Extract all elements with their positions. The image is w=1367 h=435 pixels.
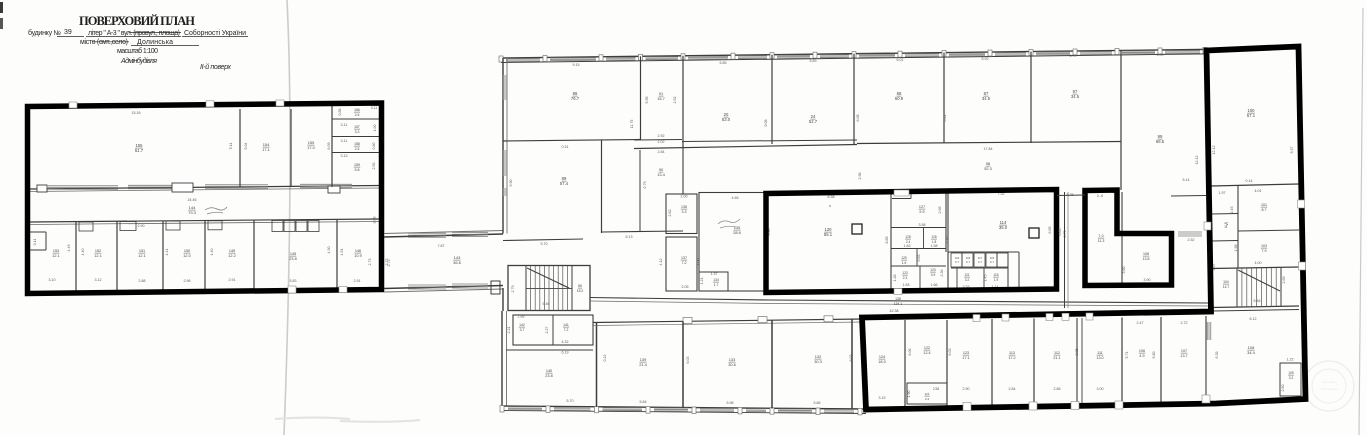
svg-text:111: 111 bbox=[1097, 351, 1103, 355]
svg-text:39: 39 bbox=[64, 29, 72, 36]
svg-text:109: 109 bbox=[1288, 371, 1294, 375]
svg-text:101: 101 bbox=[1261, 203, 1267, 207]
svg-text:5.46: 5.46 bbox=[1254, 299, 1261, 303]
svg-text:9.15: 9.15 bbox=[573, 63, 580, 67]
svg-text:127: 127 bbox=[919, 205, 925, 209]
svg-text:12.12: 12.12 bbox=[1212, 146, 1216, 155]
svg-text:літер " А-3 " вул. (провул., п: літер " А-3 " вул. (провул., площа) bbox=[88, 29, 180, 37]
svg-text:1.97: 1.97 bbox=[1219, 191, 1226, 195]
svg-text:0.7: 0.7 bbox=[978, 260, 982, 264]
svg-text:0.31: 0.31 bbox=[562, 145, 569, 149]
svg-text:1.28: 1.28 bbox=[893, 275, 897, 282]
svg-text:1.7: 1.7 bbox=[714, 283, 719, 287]
svg-text:2.96: 2.96 bbox=[184, 279, 191, 283]
svg-text:2.91: 2.91 bbox=[229, 278, 236, 282]
svg-text:6.65: 6.65 bbox=[1058, 229, 1062, 236]
svg-text:134: 134 bbox=[713, 278, 719, 282]
svg-text:3.2: 3.2 bbox=[1289, 376, 1294, 380]
svg-text:3.9: 3.9 bbox=[931, 273, 936, 277]
svg-text:2.58: 2.58 bbox=[933, 387, 939, 391]
svg-text:7-0: 7-0 bbox=[1098, 234, 1103, 238]
svg-text:мiськ бюро: мiськ бюро bbox=[1321, 380, 1337, 384]
svg-text:13.8: 13.8 bbox=[1143, 257, 1150, 261]
svg-text:0.11: 0.11 bbox=[33, 239, 37, 246]
svg-text:149: 149 bbox=[229, 249, 235, 253]
svg-text:122: 122 bbox=[924, 346, 930, 350]
svg-text:5.70: 5.70 bbox=[1070, 54, 1077, 58]
svg-text:136: 136 bbox=[681, 205, 687, 209]
svg-text:85: 85 bbox=[578, 284, 582, 288]
svg-text:121: 121 bbox=[964, 273, 970, 277]
svg-text:2.52: 2.52 bbox=[673, 97, 677, 104]
svg-text:3.11: 3.11 bbox=[341, 123, 348, 127]
svg-text:4.51: 4.51 bbox=[340, 249, 344, 256]
svg-text:1.66: 1.66 bbox=[931, 283, 938, 287]
svg-text:151: 151 bbox=[139, 249, 145, 253]
svg-text:0.80: 0.80 bbox=[372, 143, 376, 150]
svg-text:0.7: 0.7 bbox=[966, 260, 970, 264]
svg-text:113: 113 bbox=[1009, 351, 1015, 355]
svg-text:1.9: 1.9 bbox=[994, 278, 999, 282]
svg-text:6.12: 6.12 bbox=[1250, 317, 1257, 321]
svg-text:4.41: 4.41 bbox=[165, 249, 169, 256]
svg-text:2.45: 2.45 bbox=[1230, 207, 1234, 214]
svg-text:13.0: 13.0 bbox=[1096, 356, 1103, 360]
svg-text:125: 125 bbox=[901, 256, 907, 260]
svg-text:6.19: 6.19 bbox=[562, 351, 569, 355]
svg-text:116: 116 bbox=[993, 273, 998, 277]
svg-text:4.65: 4.65 bbox=[732, 196, 739, 200]
svg-text:159: 159 bbox=[354, 163, 360, 167]
svg-text:156: 156 bbox=[354, 108, 360, 112]
svg-text:9.8: 9.8 bbox=[355, 168, 360, 172]
svg-text:57.1: 57.1 bbox=[1247, 113, 1256, 118]
svg-text:68.5: 68.5 bbox=[1156, 139, 1165, 144]
svg-text:5.85: 5.85 bbox=[720, 61, 727, 65]
svg-text:1.83: 1.83 bbox=[903, 283, 910, 287]
svg-text:6.01: 6.01 bbox=[897, 58, 904, 62]
svg-text:6.65: 6.65 bbox=[1048, 227, 1052, 234]
svg-text:5.83: 5.83 bbox=[290, 279, 297, 283]
svg-text:7.9: 7.9 bbox=[1262, 249, 1267, 253]
svg-text:112: 112 bbox=[1054, 351, 1060, 355]
svg-text:79.3: 79.3 bbox=[188, 210, 197, 215]
svg-text:1.37: 1.37 bbox=[711, 272, 718, 276]
svg-text:21.1: 21.1 bbox=[1053, 356, 1060, 360]
svg-text:23.8: 23.8 bbox=[289, 257, 296, 261]
svg-text:2.90: 2.90 bbox=[963, 387, 970, 391]
svg-text:4.32: 4.32 bbox=[562, 340, 569, 344]
svg-text:107: 107 bbox=[1181, 349, 1187, 353]
svg-text:2.73: 2.73 bbox=[385, 259, 389, 266]
svg-text:0.88: 0.88 bbox=[338, 109, 342, 116]
svg-text:13.7: 13.7 bbox=[1180, 354, 1187, 358]
svg-text:23.8: 23.8 bbox=[545, 374, 552, 378]
svg-text:52.3: 52.3 bbox=[984, 166, 992, 171]
svg-text:2.52: 2.52 bbox=[1188, 238, 1195, 242]
svg-text:76.7: 76.7 bbox=[571, 96, 580, 101]
svg-text:2.00: 2.00 bbox=[681, 195, 688, 199]
svg-text:ПОВЕРХОВИЙ ПЛАН: ПОВЕРХОВИЙ ПЛАН bbox=[79, 14, 196, 28]
svg-text:2.47: 2.47 bbox=[1137, 321, 1144, 325]
svg-text:9.37: 9.37 bbox=[1290, 147, 1294, 154]
svg-text:134.1: 134.1 bbox=[894, 302, 903, 306]
svg-text:126: 126 bbox=[931, 235, 937, 239]
svg-text:ЩД: ЩД bbox=[1224, 222, 1228, 228]
svg-text:2.90: 2.90 bbox=[138, 224, 145, 228]
svg-text:3.7: 3.7 bbox=[520, 328, 525, 332]
svg-text:15.2: 15.2 bbox=[577, 289, 584, 293]
svg-text:6.08: 6.08 bbox=[856, 115, 860, 122]
svg-text:18.0: 18.0 bbox=[878, 360, 885, 364]
svg-text:6.03: 6.03 bbox=[686, 357, 690, 364]
svg-text:158: 158 bbox=[354, 142, 360, 146]
svg-text:4.12: 4.12 bbox=[659, 259, 663, 266]
svg-text:55.1: 55.1 bbox=[824, 232, 833, 237]
svg-text:17.1: 17.1 bbox=[962, 356, 969, 360]
svg-text:34.5: 34.5 bbox=[1071, 94, 1080, 99]
svg-text:24.46: 24.46 bbox=[188, 198, 197, 202]
svg-text:5.98: 5.98 bbox=[727, 401, 734, 405]
svg-text:36.6: 36.6 bbox=[453, 260, 462, 265]
svg-text:5.00: 5.00 bbox=[1157, 53, 1164, 57]
svg-text:7.2: 7.2 bbox=[682, 261, 687, 265]
svg-text:21.4: 21.4 bbox=[639, 362, 647, 367]
svg-text:0.7: 0.7 bbox=[955, 260, 959, 264]
svg-text:5.46: 5.46 bbox=[543, 302, 550, 306]
svg-text:2.-0: 2.-0 bbox=[1097, 194, 1103, 198]
svg-text:6.06: 6.06 bbox=[908, 349, 912, 356]
svg-text:6.09: 6.09 bbox=[327, 143, 331, 150]
svg-text:1.98: 1.98 bbox=[1234, 245, 1238, 252]
svg-text:5.11: 5.11 bbox=[229, 143, 233, 150]
svg-text:1.00: 1.00 bbox=[373, 125, 377, 132]
svg-text:6.35: 6.35 bbox=[1215, 352, 1219, 359]
svg-text:5.86: 5.86 bbox=[814, 401, 821, 405]
svg-text:2.86: 2.86 bbox=[1054, 387, 1061, 391]
svg-text:13.4: 13.4 bbox=[657, 172, 665, 177]
svg-text:14.7: 14.7 bbox=[1223, 285, 1230, 289]
svg-text:Соборності України: Соборності України bbox=[184, 29, 246, 37]
svg-text:104: 104 bbox=[1223, 280, 1229, 284]
svg-text:2.84: 2.84 bbox=[1009, 387, 1016, 391]
svg-text:2.72: 2.72 bbox=[1181, 321, 1188, 325]
svg-text:2.79: 2.79 bbox=[511, 286, 515, 293]
svg-text:2.3: 2.3 bbox=[903, 276, 908, 280]
svg-text:12.0: 12.0 bbox=[183, 254, 190, 258]
svg-text:140: 140 bbox=[546, 369, 552, 373]
svg-text:2.98: 2.98 bbox=[858, 173, 862, 180]
svg-text:8.85: 8.85 bbox=[885, 237, 889, 244]
svg-text:57.4: 57.4 bbox=[560, 181, 569, 186]
svg-text:150: 150 bbox=[184, 249, 190, 253]
svg-text:4.9: 4.9 bbox=[1139, 354, 1144, 358]
svg-text:0.79: 0.79 bbox=[643, 182, 647, 189]
svg-text:5.70: 5.70 bbox=[567, 399, 574, 403]
svg-text:0.22: 0.22 bbox=[603, 355, 607, 362]
svg-text:*: * bbox=[829, 205, 831, 211]
svg-text:2.73: 2.73 bbox=[368, 259, 372, 266]
svg-text:3.00: 3.00 bbox=[1097, 387, 1104, 391]
svg-text:0.7: 0.7 bbox=[990, 260, 994, 264]
svg-text:2.6: 2.6 bbox=[355, 113, 360, 117]
svg-text:12.1: 12.1 bbox=[94, 254, 101, 258]
svg-text:138: 138 bbox=[895, 297, 901, 301]
svg-text:53.0: 53.0 bbox=[722, 117, 731, 122]
svg-text:5.92: 5.92 bbox=[982, 57, 989, 61]
svg-text:5.80: 5.80 bbox=[1152, 352, 1156, 359]
svg-text:5.70: 5.70 bbox=[541, 242, 548, 246]
svg-text:1.88: 1.88 bbox=[518, 315, 525, 319]
svg-text:0.63: 0.63 bbox=[917, 255, 921, 262]
svg-text:15.7: 15.7 bbox=[657, 96, 665, 101]
svg-text:3.3: 3.3 bbox=[682, 210, 687, 214]
svg-text:17.2: 17.2 bbox=[1008, 356, 1015, 360]
svg-text:3.90: 3.90 bbox=[1144, 278, 1151, 282]
svg-text:10.9: 10.9 bbox=[354, 254, 361, 258]
svg-text:5.83: 5.83 bbox=[810, 59, 817, 63]
svg-text:30.3: 30.3 bbox=[814, 359, 822, 364]
svg-text:ІІ-й поверх: ІІ-й поверх bbox=[200, 63, 232, 71]
svg-text:11.75: 11.75 bbox=[630, 120, 634, 129]
svg-text:2.5: 2.5 bbox=[355, 147, 360, 151]
svg-text:6.38: 6.38 bbox=[828, 195, 835, 199]
svg-text:50.9: 50.9 bbox=[895, 96, 904, 101]
svg-text:123: 123 bbox=[902, 271, 908, 275]
svg-text:11.3: 11.3 bbox=[1098, 239, 1105, 243]
svg-text:технічна інв: технічна інв bbox=[1321, 387, 1338, 391]
svg-text:30.6: 30.6 bbox=[728, 362, 736, 367]
svg-text:3.11: 3.11 bbox=[341, 139, 348, 143]
svg-text:будинку №: будинку № bbox=[28, 29, 61, 37]
svg-text:12.2: 12.2 bbox=[228, 254, 235, 258]
svg-text:4.00: 4.00 bbox=[1255, 261, 1262, 265]
svg-text:3.3: 3.3 bbox=[355, 130, 360, 134]
svg-text:5.95: 5.95 bbox=[645, 97, 649, 104]
svg-text:7.87: 7.87 bbox=[438, 244, 445, 248]
svg-text:153: 153 bbox=[53, 249, 59, 253]
svg-text:1.83: 1.83 bbox=[904, 244, 911, 248]
svg-text:1.22: 1.22 bbox=[1287, 358, 1294, 362]
svg-text:2.91: 2.91 bbox=[354, 279, 361, 283]
svg-text:108: 108 bbox=[1143, 252, 1149, 256]
svg-text:52.7: 52.7 bbox=[809, 119, 818, 124]
svg-text:Адмінбудівля: Адмінбудівля bbox=[120, 57, 157, 65]
svg-text:141: 141 bbox=[563, 323, 569, 327]
svg-text:3.15: 3.15 bbox=[879, 396, 886, 400]
svg-text:0.14: 0.14 bbox=[1246, 179, 1253, 183]
svg-text:4.40: 4.40 bbox=[210, 249, 214, 256]
svg-text:123: 123 bbox=[963, 351, 969, 355]
svg-text:5.13: 5.13 bbox=[626, 235, 633, 239]
svg-text:2.93: 2.93 bbox=[372, 163, 376, 170]
svg-text:2.92: 2.92 bbox=[658, 134, 665, 138]
svg-text:34.4: 34.4 bbox=[1247, 350, 1256, 355]
svg-text:3.11: 3.11 bbox=[371, 106, 378, 110]
svg-text:2.05: 2.05 bbox=[682, 285, 689, 289]
svg-text:12.1: 12.1 bbox=[52, 254, 59, 258]
svg-text:4.30: 4.30 bbox=[327, 247, 331, 254]
svg-text:12.4: 12.4 bbox=[923, 351, 930, 355]
svg-text:17.0: 17.0 bbox=[307, 145, 315, 150]
svg-text:4.49: 4.49 bbox=[67, 245, 71, 252]
svg-text:3.60: 3.60 bbox=[1122, 267, 1126, 274]
svg-text:146: 146 bbox=[355, 249, 361, 253]
svg-text:17.84: 17.84 bbox=[984, 147, 993, 151]
svg-text:142: 142 bbox=[519, 323, 525, 327]
svg-text:1.45: 1.45 bbox=[984, 275, 988, 282]
svg-text:9.08: 9.08 bbox=[764, 120, 768, 127]
svg-text:9.9: 9.9 bbox=[919, 210, 924, 214]
svg-text:5.71: 5.71 bbox=[1125, 352, 1129, 359]
svg-text:Долинська: Долинська bbox=[137, 39, 173, 46]
svg-text:4.40: 4.40 bbox=[81, 249, 85, 256]
svg-text:137: 137 bbox=[681, 256, 687, 260]
svg-text:2.36: 2.36 bbox=[940, 270, 944, 277]
svg-text:2.82: 2.82 bbox=[668, 210, 672, 217]
svg-text:35.0: 35.0 bbox=[999, 225, 1008, 230]
svg-text:3.2: 3.2 bbox=[965, 278, 970, 282]
svg-text:7.2: 7.2 bbox=[564, 328, 569, 332]
svg-text:15.16: 15.16 bbox=[132, 111, 141, 115]
svg-text:121: 121 bbox=[924, 392, 929, 396]
svg-text:6.21: 6.21 bbox=[943, 115, 947, 122]
svg-text:103: 103 bbox=[1261, 244, 1267, 248]
svg-text:3.58: 3.58 bbox=[919, 223, 926, 227]
svg-text:6.03: 6.03 bbox=[948, 349, 952, 356]
svg-text:42.38: 42.38 bbox=[890, 309, 899, 313]
svg-text:128: 128 bbox=[905, 235, 911, 239]
svg-text:145: 145 bbox=[290, 252, 296, 256]
svg-text:124: 124 bbox=[879, 355, 885, 359]
svg-text:17.1: 17.1 bbox=[262, 147, 270, 152]
svg-text:157: 157 bbox=[354, 125, 360, 129]
svg-text:1.58: 1.58 bbox=[931, 244, 938, 248]
svg-text:2.84: 2.84 bbox=[658, 150, 665, 154]
svg-text:3.10: 3.10 bbox=[49, 278, 56, 282]
svg-text:2.27: 2.27 bbox=[545, 327, 549, 334]
svg-text:1.75: 1.75 bbox=[1067, 193, 1074, 197]
svg-text:1.21: 1.21 bbox=[700, 278, 704, 285]
svg-text:12.1: 12.1 bbox=[138, 254, 145, 258]
svg-text:28.6: 28.6 bbox=[733, 230, 741, 235]
svg-text:106: 106 bbox=[1139, 349, 1145, 353]
svg-text:1.6: 1.6 bbox=[902, 261, 907, 265]
svg-text:масштаб 1:100: масштаб 1:100 bbox=[117, 47, 158, 55]
svg-text:8.7: 8.7 bbox=[1262, 208, 1267, 212]
svg-text:2.21: 2.21 bbox=[507, 327, 511, 334]
svg-text:2.88: 2.88 bbox=[139, 279, 146, 283]
svg-text:152: 152 bbox=[95, 249, 101, 253]
svg-text:123: 123 bbox=[930, 268, 936, 272]
svg-text:2.60: 2.60 bbox=[1281, 385, 1285, 392]
svg-text:2.69: 2.69 bbox=[1282, 277, 1286, 284]
svg-text:34.5: 34.5 bbox=[982, 96, 991, 101]
svg-text:51.7: 51.7 bbox=[135, 148, 144, 153]
svg-text:3.4: 3.4 bbox=[925, 397, 930, 401]
svg-text:5.84: 5.84 bbox=[640, 400, 647, 404]
svg-text:2.65: 2.65 bbox=[938, 207, 942, 214]
svg-text:12.12: 12.12 bbox=[1195, 156, 1199, 165]
svg-text:5.90: 5.90 bbox=[509, 180, 513, 187]
svg-text:4.01: 4.01 bbox=[1255, 189, 1262, 193]
svg-text:5.14: 5.14 bbox=[1183, 178, 1190, 182]
svg-text:2.88: 2.88 bbox=[373, 217, 377, 224]
svg-text:2.02: 2.02 bbox=[658, 140, 665, 144]
svg-text:3.12: 3.12 bbox=[95, 278, 102, 282]
svg-text:3.13: 3.13 bbox=[341, 154, 348, 158]
svg-text:1.90: 1.90 bbox=[907, 391, 911, 398]
svg-text:5.04: 5.04 bbox=[244, 143, 248, 150]
